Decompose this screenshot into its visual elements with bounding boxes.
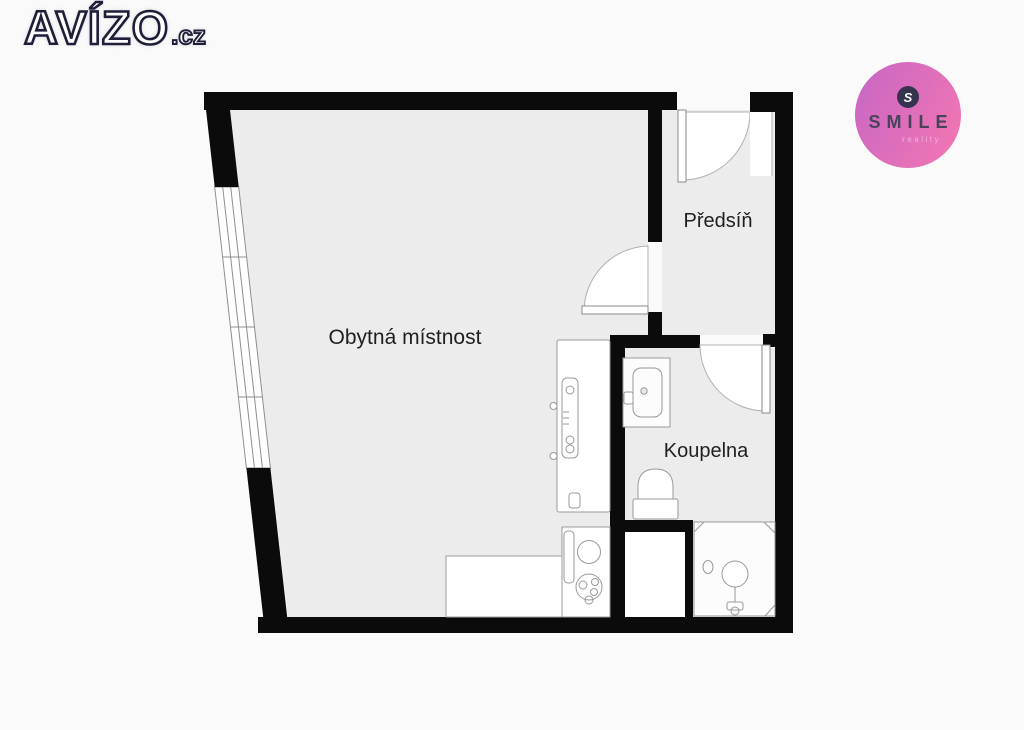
basin-drain [641,388,647,394]
toilet-tank [633,499,678,519]
knob [550,403,557,410]
hallway-label: Předsíň [684,210,753,232]
bathroom-closet-wall [610,520,693,532]
kitchen-sink [578,541,601,564]
closet-shower-wall [685,532,693,617]
entry-door-leaf [678,110,686,182]
kitchen-cabinet [446,556,562,617]
floorplan: Obytná místnost Předsíň Koupelna [0,0,1024,730]
bottom-wall [258,617,793,633]
kitchen-counter-top [557,340,610,512]
living-room-door-leaf [582,306,648,314]
closet-floor [625,532,685,617]
living-room-label: Obytná místnost [329,326,482,349]
bathroom-door-leaf [762,345,770,413]
right-wall [775,92,793,633]
top-wall [204,92,677,110]
floors [229,110,775,617]
shower-drain [722,561,748,587]
hall-divider-wall-upper [648,110,662,242]
bathroom-label: Koupelna [664,440,749,462]
toilet-bowl [638,469,673,501]
basin-tap [624,392,633,404]
bathroom-top-wall [610,335,700,348]
shower-faucet [727,602,743,610]
knob [550,453,557,460]
